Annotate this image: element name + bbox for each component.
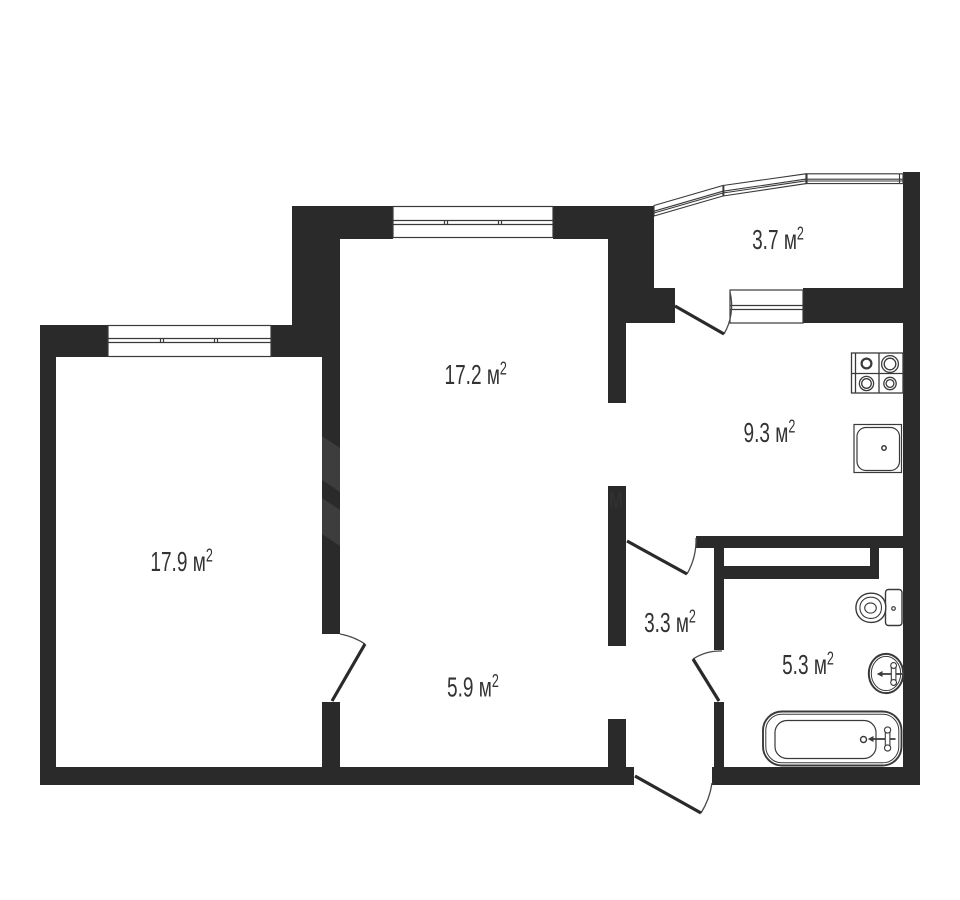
svg-text:3.7 м2: 3.7 м2 [752, 224, 804, 256]
svg-text:17.2 м2: 17.2 м2 [444, 359, 506, 391]
svg-text:9.3 м2: 9.3 м2 [743, 417, 795, 449]
svg-text:5.9 м2: 5.9 м2 [447, 672, 499, 704]
svg-text:3.3 м2: 3.3 м2 [644, 607, 696, 639]
svg-text:5.3 м2: 5.3 м2 [782, 649, 834, 681]
svg-text:17.9 м2: 17.9 м2 [150, 546, 212, 578]
svg-text:М: М [609, 487, 623, 514]
